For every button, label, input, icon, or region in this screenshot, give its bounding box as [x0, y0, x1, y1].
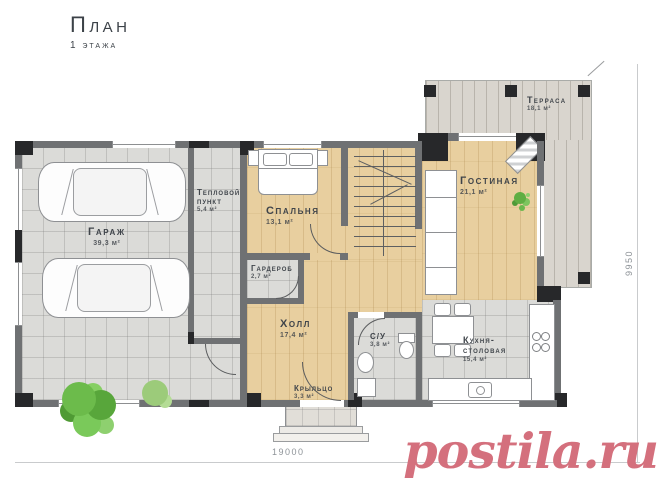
staircase [354, 150, 416, 256]
chair [434, 303, 451, 316]
bathroom-doorway [358, 312, 384, 318]
sink [357, 352, 374, 373]
room-label-terrace: Терраса 18,1 м² [527, 95, 566, 113]
dimension-height: 9950 [624, 250, 634, 276]
bathroom-wall-left [348, 312, 354, 400]
kitchen-window [432, 400, 520, 407]
floor-plan: План 1 этажа [0, 0, 660, 488]
tree-large [62, 382, 96, 416]
column [247, 393, 261, 407]
room-label-kitchen: Кухня-столовая 15,4 м² [463, 335, 525, 364]
terrace-column [578, 272, 590, 284]
chair [454, 303, 471, 316]
plan-title: План [70, 12, 131, 38]
heating-wall-left [188, 148, 194, 338]
column [188, 332, 194, 344]
car-bottom [42, 258, 190, 318]
stove [531, 330, 551, 372]
room-label-porch: Крыльцо 3,3 м² [294, 384, 348, 401]
column [418, 133, 448, 161]
living-terrace-window [537, 185, 544, 257]
washer [357, 378, 376, 397]
terrace-column [505, 85, 517, 97]
stair-winder-line [370, 184, 408, 205]
room-label-hall: Холл 17,4 м² [280, 318, 311, 340]
terrace-floor-side [541, 140, 592, 288]
page-title: План 1 этажа [70, 12, 131, 51]
stair-rail [383, 150, 384, 256]
bedroom-window [263, 141, 322, 148]
corner-leader-line [587, 61, 604, 76]
nightstand [317, 150, 328, 166]
dimension-line-right [637, 64, 638, 462]
car-cabin [73, 168, 147, 216]
bedroom-stair-wall [341, 148, 348, 226]
pillow [289, 153, 313, 166]
room-label-heating: Тепловой пункт 5,4 м² [197, 188, 239, 214]
garage-house-wall [240, 141, 247, 407]
terrace-column [578, 85, 590, 97]
bed [258, 149, 318, 195]
stair-winder-line [358, 160, 411, 185]
dimension-width: 19000 [272, 447, 305, 457]
plan-subtitle: 1 этажа [70, 40, 131, 51]
room-label-bathroom: С/У 3,8 м² [370, 332, 390, 349]
tree-small [142, 380, 168, 406]
room-label-bedroom: Спальня 13,1 м² [266, 205, 320, 227]
nightstand [248, 150, 259, 166]
car-top [38, 162, 186, 222]
garage-door-2 [15, 262, 22, 326]
terrace-column [424, 85, 436, 97]
blanket-line [259, 168, 317, 169]
column [15, 230, 22, 262]
porch-step-2 [273, 433, 369, 442]
chair [434, 344, 451, 357]
watermark-logo: postila.ru [403, 422, 658, 480]
stair-living-wall [415, 141, 422, 229]
room-label-wardrobe: Гардероб 2,7 м² [251, 264, 299, 281]
pillow [263, 153, 287, 166]
shelving-unit [425, 170, 455, 290]
room-label-living: Гостиная 21,1 м² [460, 175, 519, 197]
terrace-sliding-door [458, 133, 518, 141]
bathroom-wall-right [416, 312, 422, 400]
garage-window-top [112, 141, 176, 148]
column [189, 400, 209, 407]
garage-door-1 [15, 168, 22, 232]
column [189, 141, 209, 148]
car-windshield [61, 169, 73, 215]
bedroom-doorway [310, 253, 340, 260]
car-rear-window [146, 169, 158, 215]
column [15, 141, 33, 155]
car-cabin [77, 264, 151, 312]
car-rear-window [150, 265, 162, 311]
column [15, 393, 33, 407]
car-windshield [65, 265, 77, 311]
room-label-garage: Гараж 39,3 м² [88, 226, 126, 248]
kitchen-sink [468, 382, 492, 398]
toilet-bowl [399, 341, 414, 359]
